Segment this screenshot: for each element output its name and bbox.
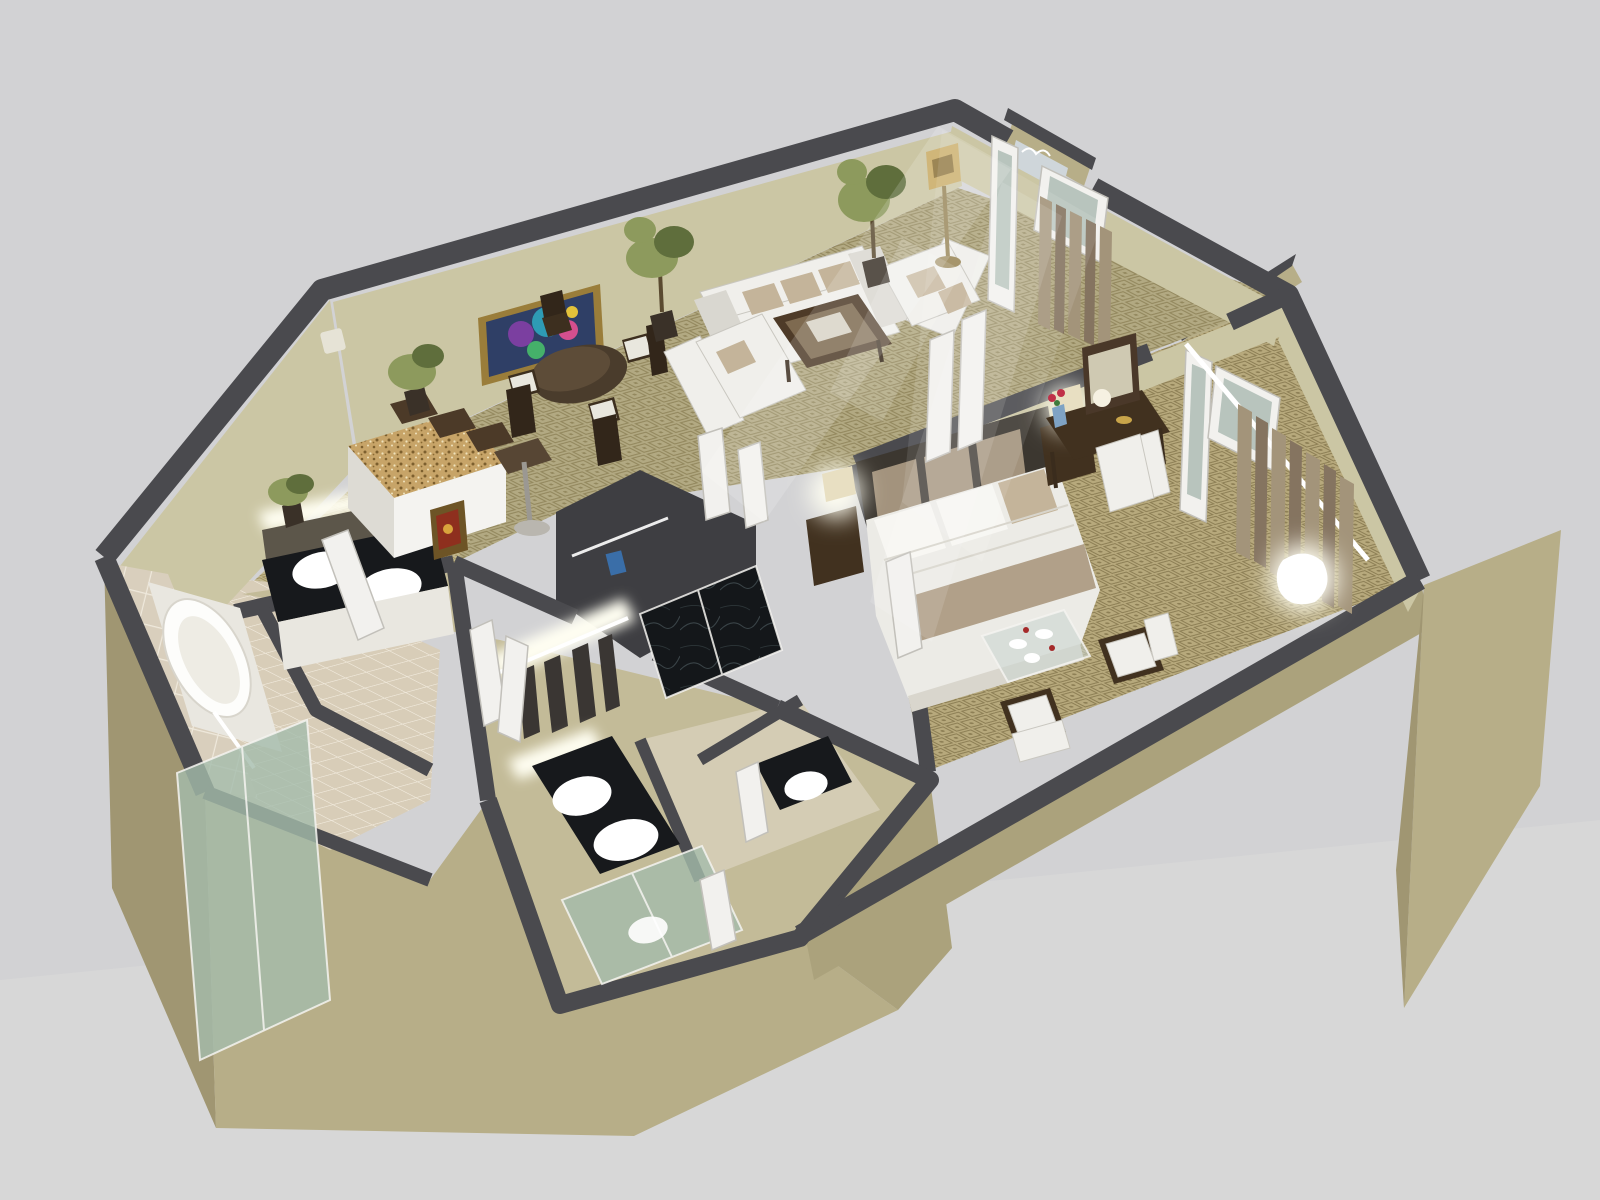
table-berries bbox=[1049, 645, 1055, 651]
desk-gold-tray bbox=[1116, 416, 1132, 424]
nightstand-west bbox=[806, 466, 864, 586]
kitchen-framed-art bbox=[430, 500, 468, 560]
floor-glow-lamp bbox=[1270, 544, 1338, 612]
bar-table-base bbox=[514, 520, 550, 536]
glow-lamp-shade bbox=[1277, 553, 1328, 604]
desk-sphere-lamp bbox=[1093, 389, 1111, 407]
floor-plan-canvas bbox=[0, 0, 1600, 1200]
floor-plan-rendering bbox=[0, 0, 1600, 1200]
